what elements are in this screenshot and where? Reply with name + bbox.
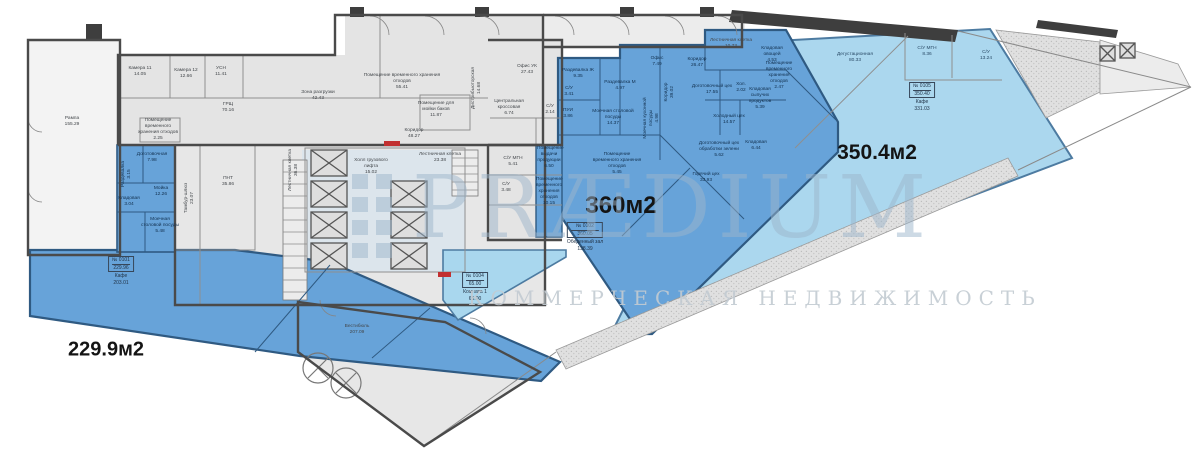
ramp-area	[28, 40, 120, 255]
top-rooms-area	[118, 15, 543, 145]
top-wall-strip-2	[1036, 20, 1118, 38]
service-shaft	[1120, 43, 1135, 58]
zone-65[interactable]	[443, 250, 566, 320]
floorplan-canvas: Рампа155.29Камера 1114.05Камера 1212.66У…	[0, 0, 1200, 464]
elevator-shaft	[311, 181, 347, 207]
office-uk-area	[488, 40, 562, 145]
elevator-shaft	[311, 150, 347, 176]
elevator-shaft	[391, 212, 427, 238]
red-marker	[438, 272, 451, 277]
elevator-shaft	[311, 243, 347, 269]
zone-229-rooms[interactable]	[117, 145, 175, 252]
red-marker	[384, 141, 400, 146]
service-shaft	[1100, 46, 1115, 61]
elevator-shaft	[311, 212, 347, 238]
floorplan-drawing	[0, 0, 1200, 464]
zone-360-annex[interactable]	[536, 145, 562, 237]
elevator-shaft	[391, 243, 427, 269]
elevator-shaft	[391, 181, 427, 207]
